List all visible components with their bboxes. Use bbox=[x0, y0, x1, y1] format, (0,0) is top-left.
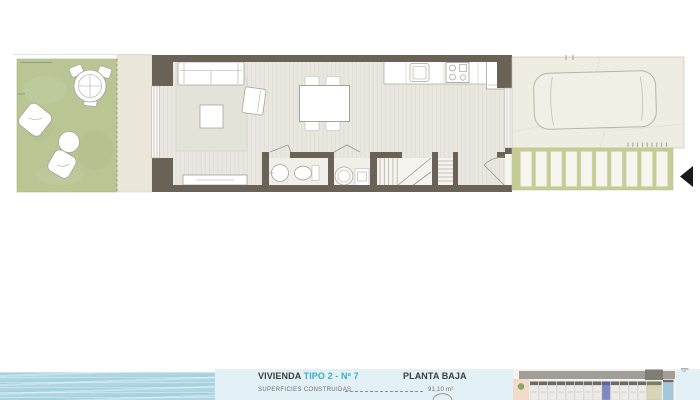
unit-type-label: TIPO 2 - Nº 7 bbox=[304, 371, 359, 381]
car bbox=[533, 70, 656, 129]
sofa bbox=[178, 62, 244, 85]
pouf bbox=[59, 132, 80, 153]
toilet bbox=[295, 166, 320, 181]
entrance-arrow-icon bbox=[680, 166, 693, 187]
washing-machine bbox=[335, 167, 353, 185]
floor-plan-drawing bbox=[0, 0, 700, 400]
key-plan-pool bbox=[663, 382, 674, 400]
coffee-table bbox=[200, 105, 223, 128]
window-garden bbox=[152, 86, 160, 158]
utility-counter bbox=[355, 169, 369, 188]
cooktop bbox=[446, 63, 469, 83]
washbasin bbox=[272, 165, 289, 182]
small-caption-mark bbox=[681, 369, 689, 371]
parking-area bbox=[512, 55, 693, 190]
armchair bbox=[242, 87, 266, 116]
sideboard bbox=[183, 175, 247, 185]
dining-table bbox=[300, 86, 350, 122]
floor-label: PLANTA BAJA bbox=[403, 370, 463, 382]
unit-label: VIVIENDA bbox=[258, 371, 301, 381]
dotted-leader bbox=[345, 391, 423, 392]
plan-title: VIVIENDA TIPO 2 - Nº 7 bbox=[258, 370, 359, 382]
kitchen-sink bbox=[410, 64, 429, 82]
key-plan-tree-icon bbox=[518, 384, 524, 390]
key-plan bbox=[513, 369, 689, 400]
driveway bbox=[512, 148, 673, 190]
porch bbox=[117, 55, 152, 192]
floor-plan-sheet: VIVIENDA TIPO 2 - Nº 7 PLANTA BAJA SUPER… bbox=[0, 0, 700, 400]
surfaces-value: 91,10 m² bbox=[428, 386, 453, 394]
surfaces-label: SUPERFICIES CONSTRUIDAS bbox=[258, 386, 351, 394]
window-parking bbox=[505, 88, 513, 148]
entrance-opening bbox=[505, 154, 512, 185]
surface-ellipse-mark bbox=[433, 394, 452, 400]
